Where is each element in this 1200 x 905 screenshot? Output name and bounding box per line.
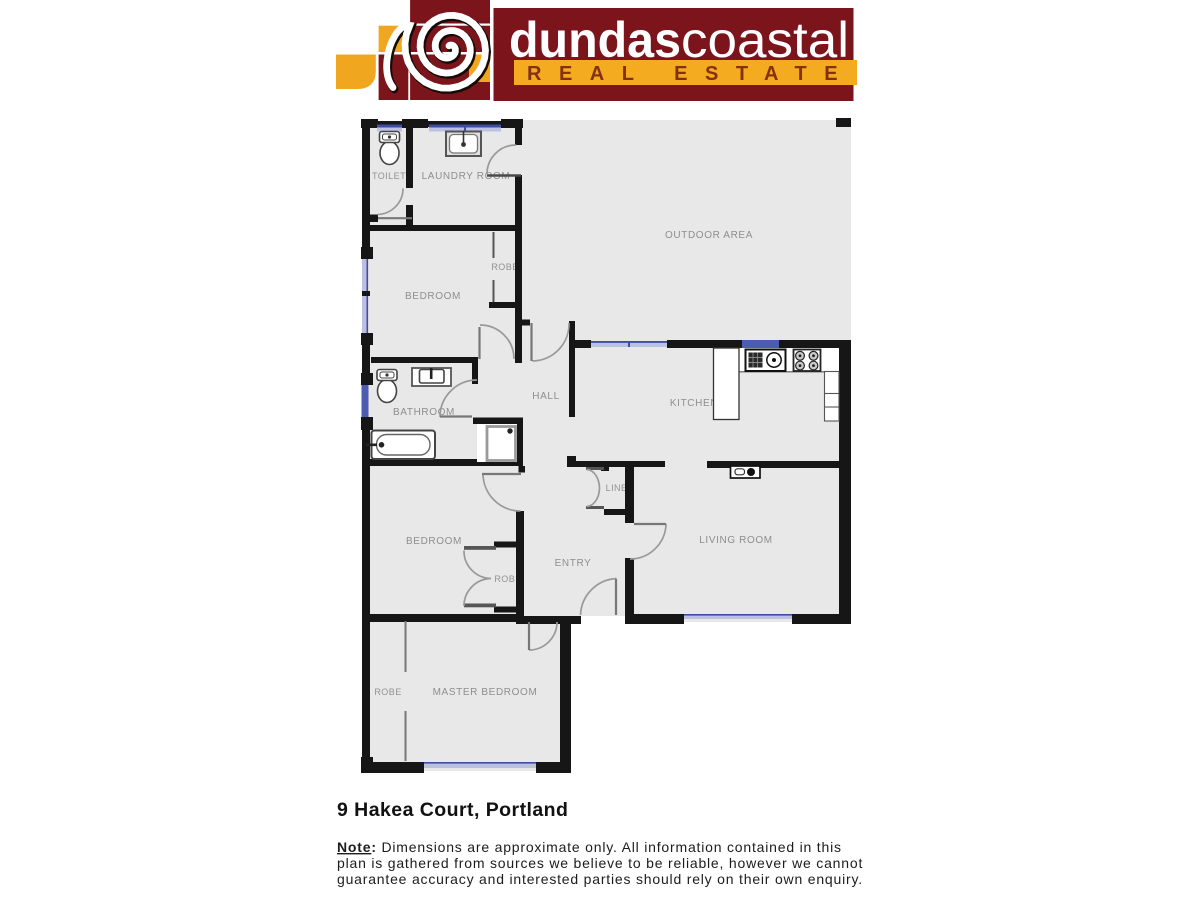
svg-text:dundas: dundas <box>509 12 681 68</box>
svg-text:KITCHEN: KITCHEN <box>670 398 718 409</box>
svg-text:LIVING ROOM: LIVING ROOM <box>699 535 773 546</box>
svg-text:Note: Dimensions are approxima: Note: Dimensions are approximate only. A… <box>337 839 842 855</box>
svg-text:MASTER BEDROOM: MASTER BEDROOM <box>433 687 538 698</box>
svg-text:OUTDOOR AREA: OUTDOOR AREA <box>665 230 753 241</box>
svg-text:guarantee accuracy and intere: guarantee accuracy and interested partie… <box>337 871 863 887</box>
svg-text:HALL: HALL <box>532 391 560 402</box>
svg-text:plan is gathered from sources: plan is gathered from sources we believe… <box>337 855 863 871</box>
svg-text:coastal: coastal <box>681 12 849 68</box>
svg-text:9 Hakea Court, Portland: 9 Hakea Court, Portland <box>337 799 568 821</box>
svg-text:REAL ESTATE: REAL ESTATE <box>527 63 855 85</box>
svg-text:ENTRY: ENTRY <box>555 558 592 569</box>
svg-text:ROBE: ROBE <box>374 687 401 697</box>
svg-text:TOILET: TOILET <box>372 171 406 181</box>
svg-text:ROBE: ROBE <box>491 262 518 272</box>
svg-text:BEDROOM: BEDROOM <box>405 291 461 302</box>
svg-text:BEDROOM: BEDROOM <box>406 536 462 547</box>
